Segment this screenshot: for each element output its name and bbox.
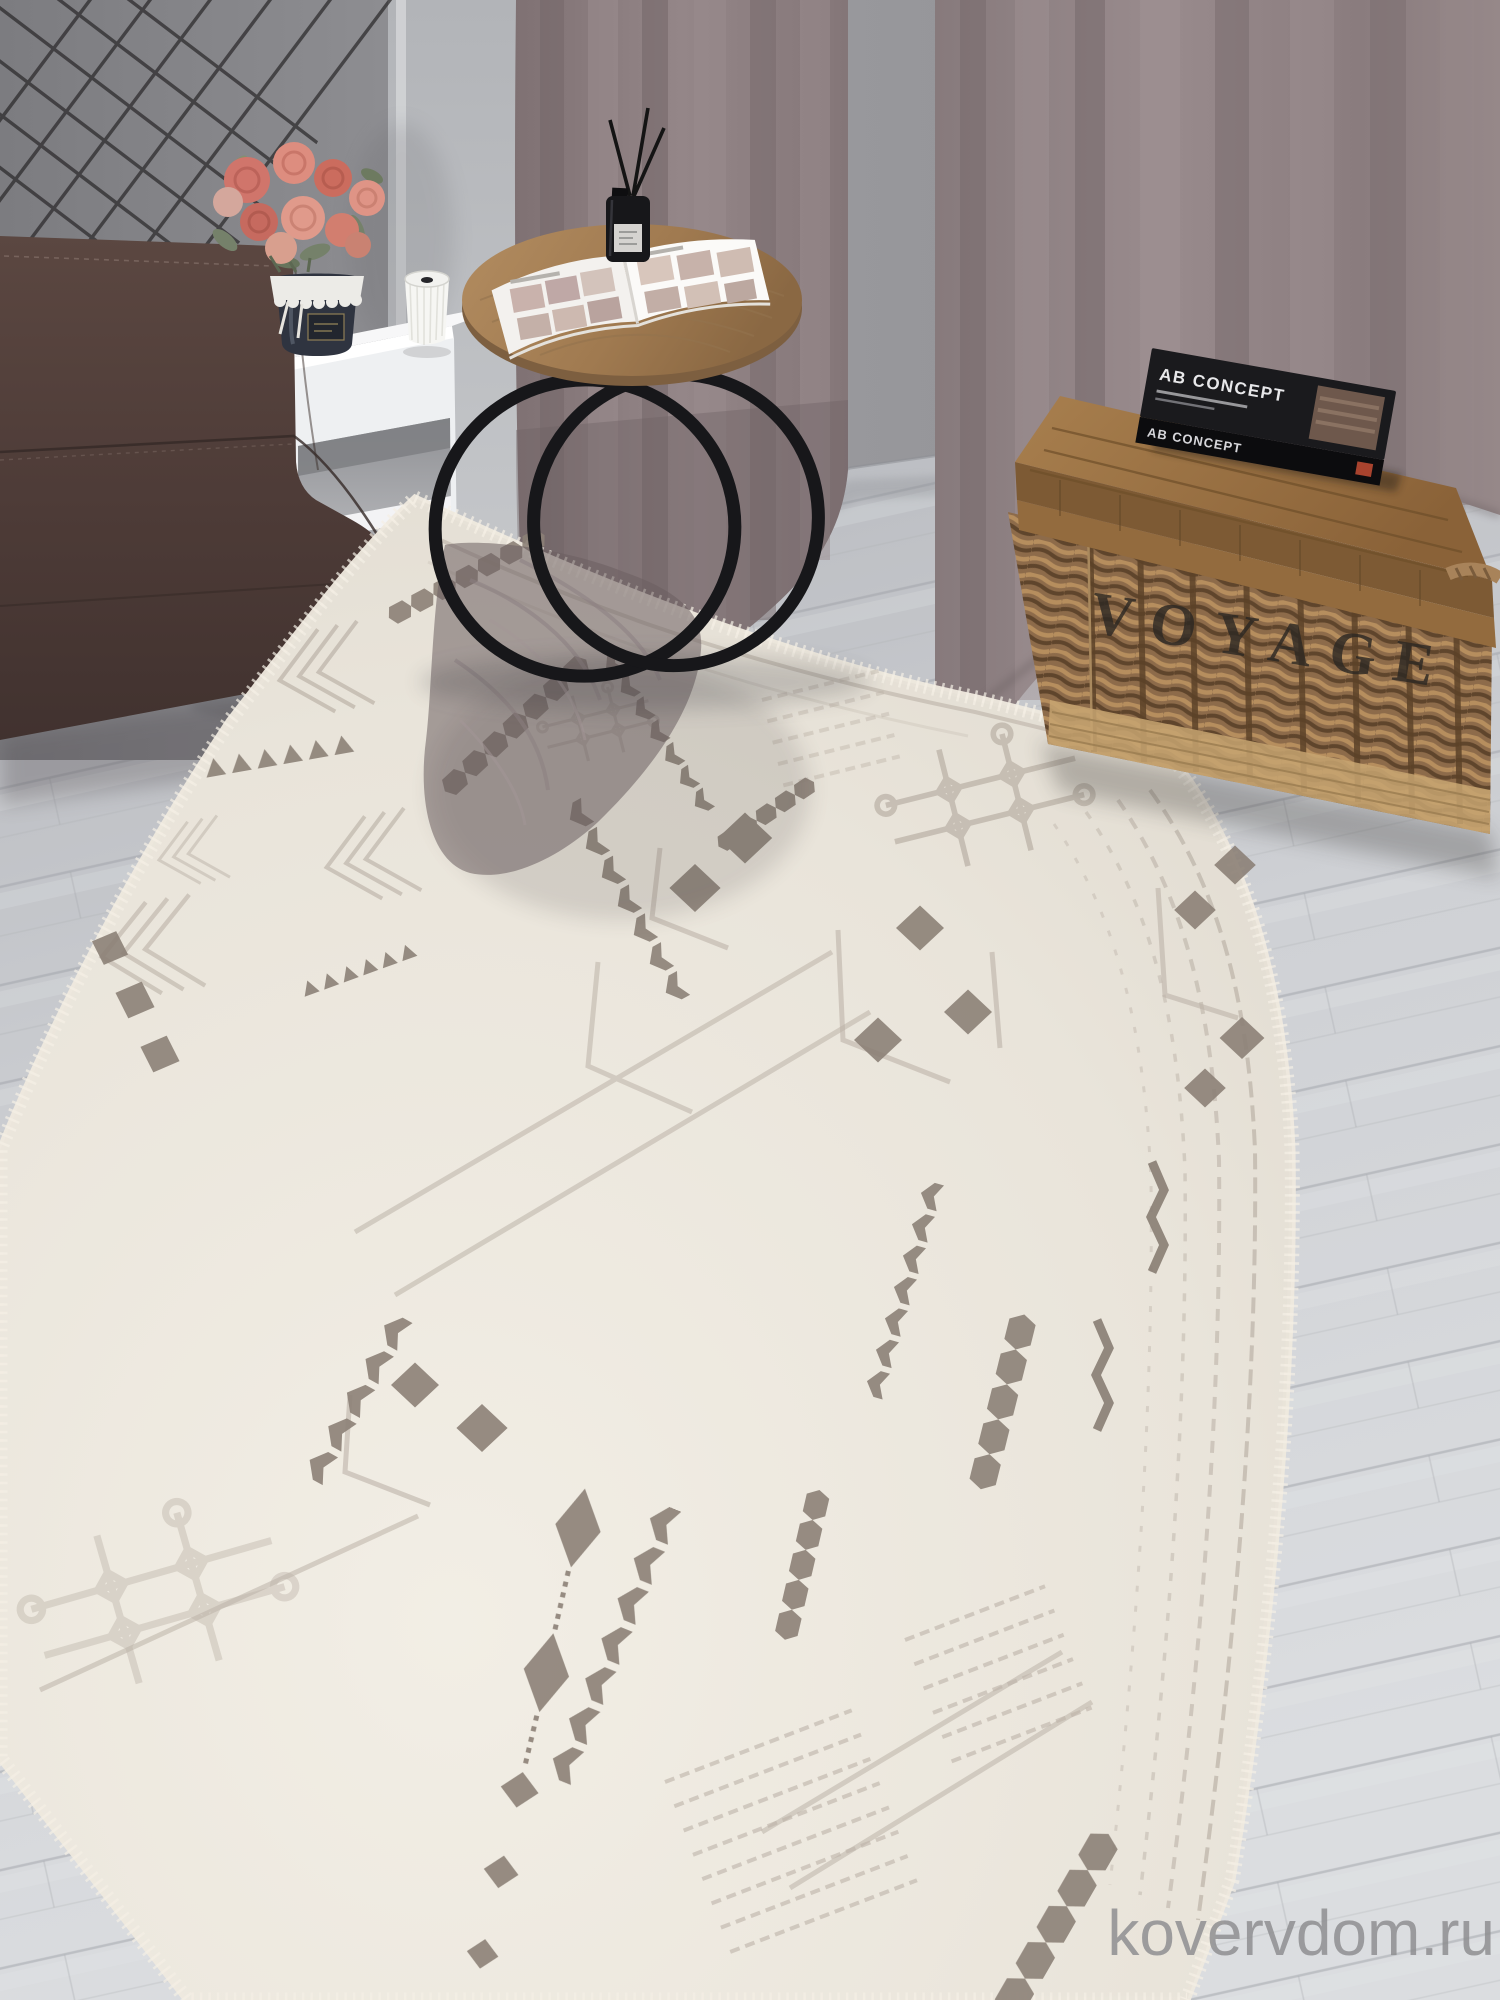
spine-accent	[1355, 461, 1373, 477]
vase-label	[308, 314, 344, 340]
spool-hole	[421, 277, 433, 283]
scene-canvas: VOYAGE AB CONCEPT AB CONCEPT kovervdom.r…	[0, 0, 1500, 2000]
photo-scene: VOYAGE AB CONCEPT AB CONCEPT kovervdom.r…	[0, 0, 1500, 2000]
spool-shadow	[403, 346, 451, 358]
lace-collar	[270, 276, 364, 300]
watermark: kovervdom.ru	[1107, 1897, 1495, 1969]
vase	[270, 274, 364, 357]
